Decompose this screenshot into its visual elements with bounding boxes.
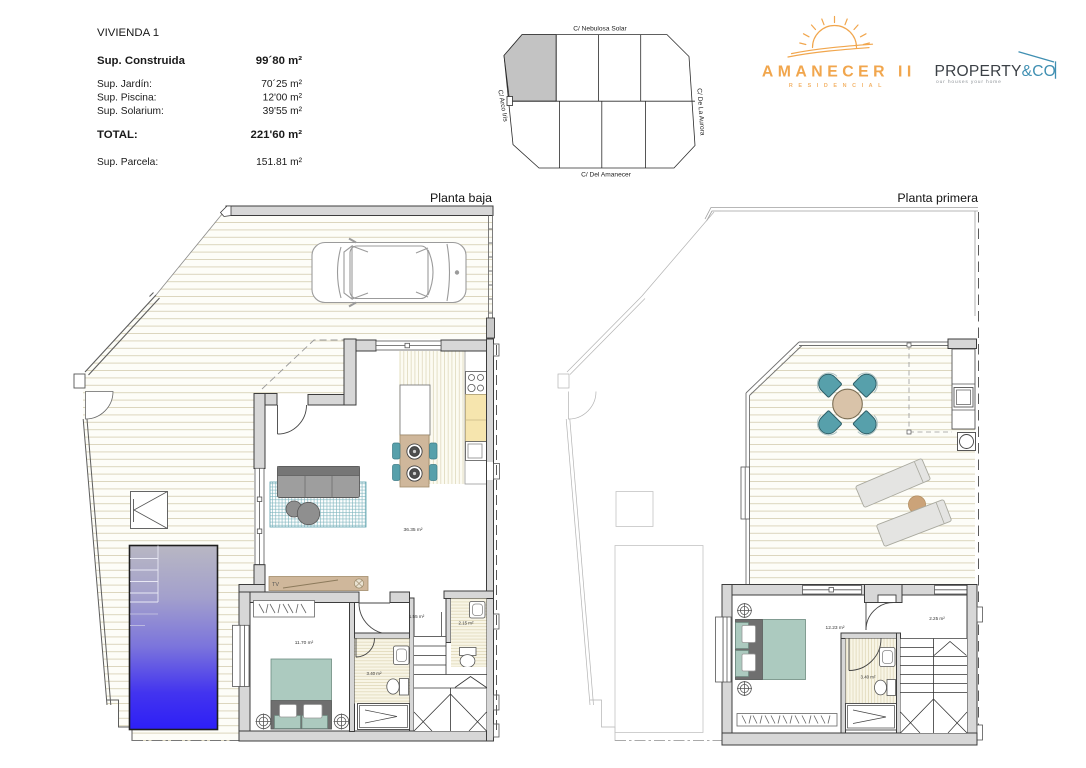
svg-text:Planta baja: Planta baja bbox=[430, 191, 492, 205]
svg-text:3.40 m²: 3.40 m² bbox=[367, 671, 382, 676]
svg-text:our houses your home: our houses your home bbox=[936, 79, 1002, 85]
svg-text:3.40 m²: 3.40 m² bbox=[861, 675, 876, 680]
svg-text:70´25 m²: 70´25 m² bbox=[261, 78, 302, 90]
svg-text:221'60 m²: 221'60 m² bbox=[251, 129, 303, 141]
svg-text:Sup. Construida: Sup. Construida bbox=[97, 55, 186, 67]
svg-text:Sup. Piscina:: Sup. Piscina: bbox=[97, 93, 156, 104]
svg-text:36.35 m²: 36.35 m² bbox=[404, 527, 423, 533]
svg-text:Sup. Solarium:: Sup. Solarium: bbox=[97, 106, 164, 117]
svg-text:151.81 m²: 151.81 m² bbox=[256, 157, 302, 168]
svg-text:Sup. Jardín:: Sup. Jardín: bbox=[97, 79, 152, 90]
svg-text:C/ Nebulosa Solar: C/ Nebulosa Solar bbox=[573, 26, 627, 33]
svg-text:C/ Del Amanecer: C/ Del Amanecer bbox=[581, 172, 632, 179]
svg-text:AMANECER II: AMANECER II bbox=[762, 64, 916, 81]
svg-text:39'55 m²: 39'55 m² bbox=[263, 106, 303, 117]
svg-text:12.23 m²: 12.23 m² bbox=[826, 625, 845, 631]
svg-text:99´80 m²: 99´80 m² bbox=[256, 55, 302, 67]
svg-text:TOTAL:: TOTAL: bbox=[97, 129, 138, 141]
svg-text:2.15 m²: 2.15 m² bbox=[459, 621, 474, 626]
svg-text:Planta primera: Planta primera bbox=[897, 191, 978, 205]
svg-text:12'00 m²: 12'00 m² bbox=[263, 93, 303, 104]
svg-text:11.70 m²: 11.70 m² bbox=[295, 640, 314, 646]
svg-text:PROPERTY&CO: PROPERTY&CO bbox=[935, 63, 1057, 80]
svg-text:2.25 m²: 2.25 m² bbox=[929, 616, 945, 621]
svg-text:TV: TV bbox=[272, 582, 279, 588]
svg-text:Sup. Parcela:: Sup. Parcela: bbox=[97, 157, 158, 168]
svg-text:VIVIENDA 1: VIVIENDA 1 bbox=[97, 27, 159, 39]
svg-text:1.55 m²: 1.55 m² bbox=[409, 614, 425, 619]
svg-text:RESIDENCIAL: RESIDENCIAL bbox=[789, 83, 887, 89]
